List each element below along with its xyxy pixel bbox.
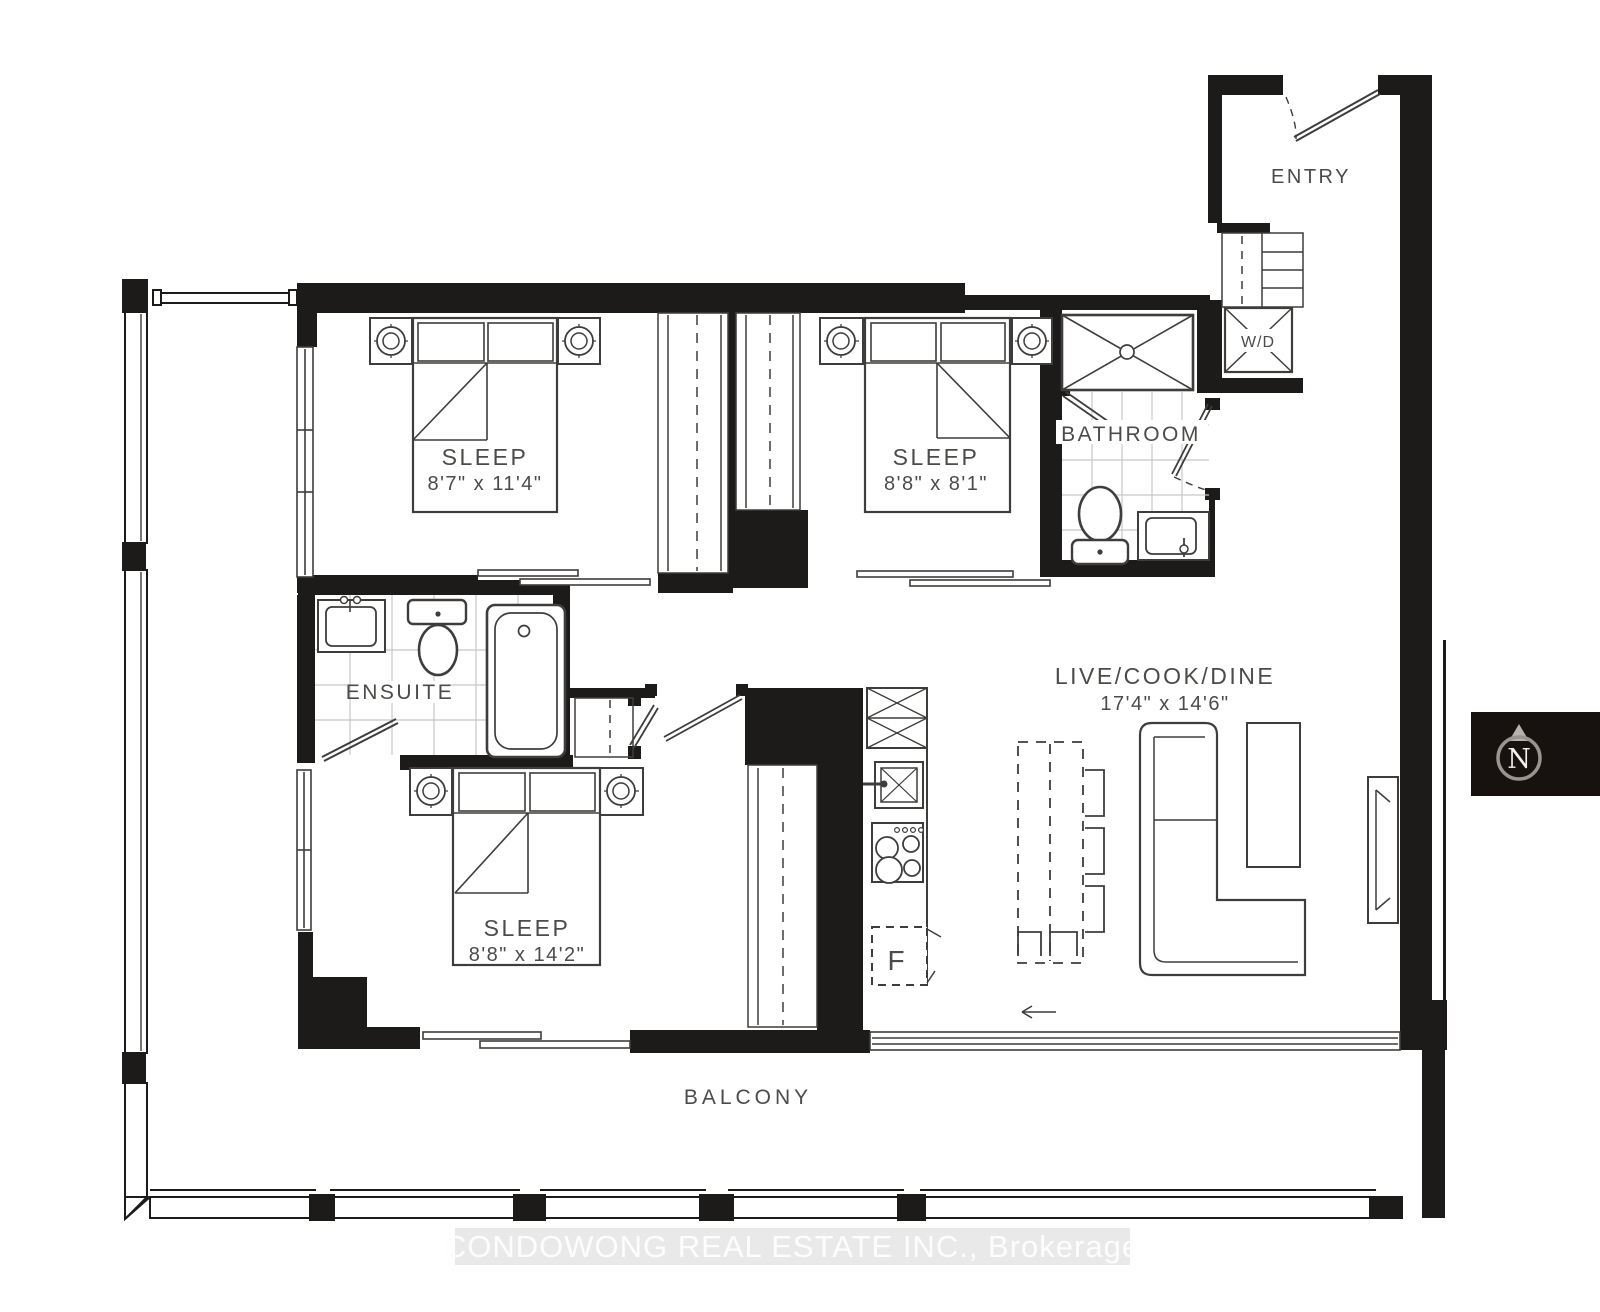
compass-background (1471, 712, 1600, 796)
live-cook-dine-label: LIVE/COOK/DINE (1055, 663, 1275, 689)
watermark-text: CONDOWONG REAL ESTATE INC., Brokerage (444, 1229, 1140, 1264)
fridge-label: F (887, 945, 904, 976)
ensuite-label: ENSUITE (346, 681, 455, 704)
sleep2-room-dims: 8'8" x 8'1" (884, 473, 988, 495)
sleep3-room-dims: 8'8" x 14'2" (469, 944, 586, 966)
north-compass: N (1471, 712, 1600, 796)
living-furniture (1018, 723, 1398, 1018)
floor-plan-page: SLEEP 8'7" x 11'4" SLEEP 8'8" x 8'1" SLE… (0, 0, 1600, 1312)
ensuite-fixtures (318, 597, 565, 762)
sleep1-room-dims: 8'7" x 11'4" (427, 473, 542, 495)
floor-plan-canvas: SLEEP 8'7" x 11'4" SLEEP 8'8" x 8'1" SLE… (0, 0, 1600, 1312)
sleep1-room-label: SLEEP (442, 444, 529, 470)
sleep3-room-label: SLEEP (484, 915, 571, 941)
sleep2-room-label: SLEEP (893, 444, 980, 470)
washer-dryer-label: W/D (1241, 334, 1275, 351)
bathroom-label: BATHROOM (1061, 423, 1201, 446)
watermark: CONDOWONG REAL ESTATE INC., Brokerage (444, 1228, 1140, 1265)
balcony-label: BALCONY (684, 1086, 812, 1109)
compass-north-letter: N (1507, 744, 1531, 775)
entry-label: ENTRY (1271, 166, 1351, 188)
live-cook-dine-dims: 17'4" x 14'6" (1100, 693, 1229, 715)
kitchen-fixtures (863, 688, 941, 985)
